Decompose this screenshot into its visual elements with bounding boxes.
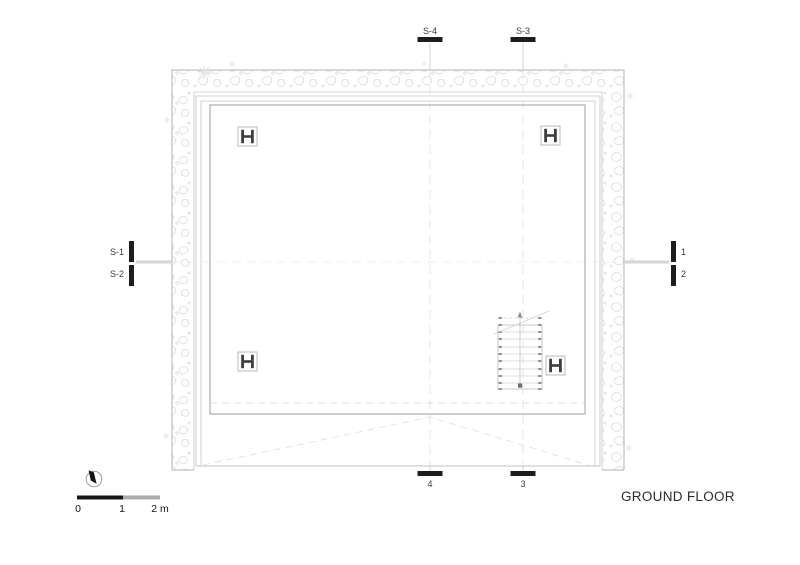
scale-tick-2m: 2 m: [151, 504, 169, 515]
scale-tick-1: 1: [119, 504, 125, 515]
inner-room-outline: [210, 105, 585, 414]
vegetation-rosettes: [162, 60, 635, 452]
scale-bar: [77, 496, 160, 500]
section-label-4: 4: [427, 479, 432, 489]
stair-break-line: [494, 311, 549, 334]
steel-column-icon-top-left: [238, 127, 257, 146]
section-label-3: 3: [520, 479, 525, 489]
column-symbols: [238, 126, 565, 375]
north-arrow-icon: [86, 470, 102, 486]
drawing-title: GROUND FLOOR: [621, 489, 735, 504]
floor-plan-drawing: [0, 0, 800, 565]
section-label-1: 1: [681, 247, 686, 257]
roof-dashed-lines: [203, 417, 588, 465]
section-label-s1: S-1: [110, 247, 124, 257]
section-label-2: 2: [681, 269, 686, 279]
section-label-s2: S-2: [110, 269, 124, 279]
steel-column-icon-bottom-right: [546, 356, 565, 375]
section-label-s3: S-3: [516, 26, 530, 36]
staircase: [494, 311, 549, 390]
floor-plan-sheet: S-4 S-3 S-1 S-2 1 2 4 3 0 1 2 m GROUND F…: [0, 0, 800, 565]
section-marker-bars: [129, 37, 676, 476]
stair-up-arrow-icon: [518, 312, 523, 318]
stair-start-dot: [518, 384, 522, 388]
steel-column-icon-bottom-left: [238, 352, 257, 371]
steel-column-icon-top-right: [541, 126, 560, 145]
scale-tick-0: 0: [75, 504, 81, 515]
section-label-s4: S-4: [423, 26, 437, 36]
